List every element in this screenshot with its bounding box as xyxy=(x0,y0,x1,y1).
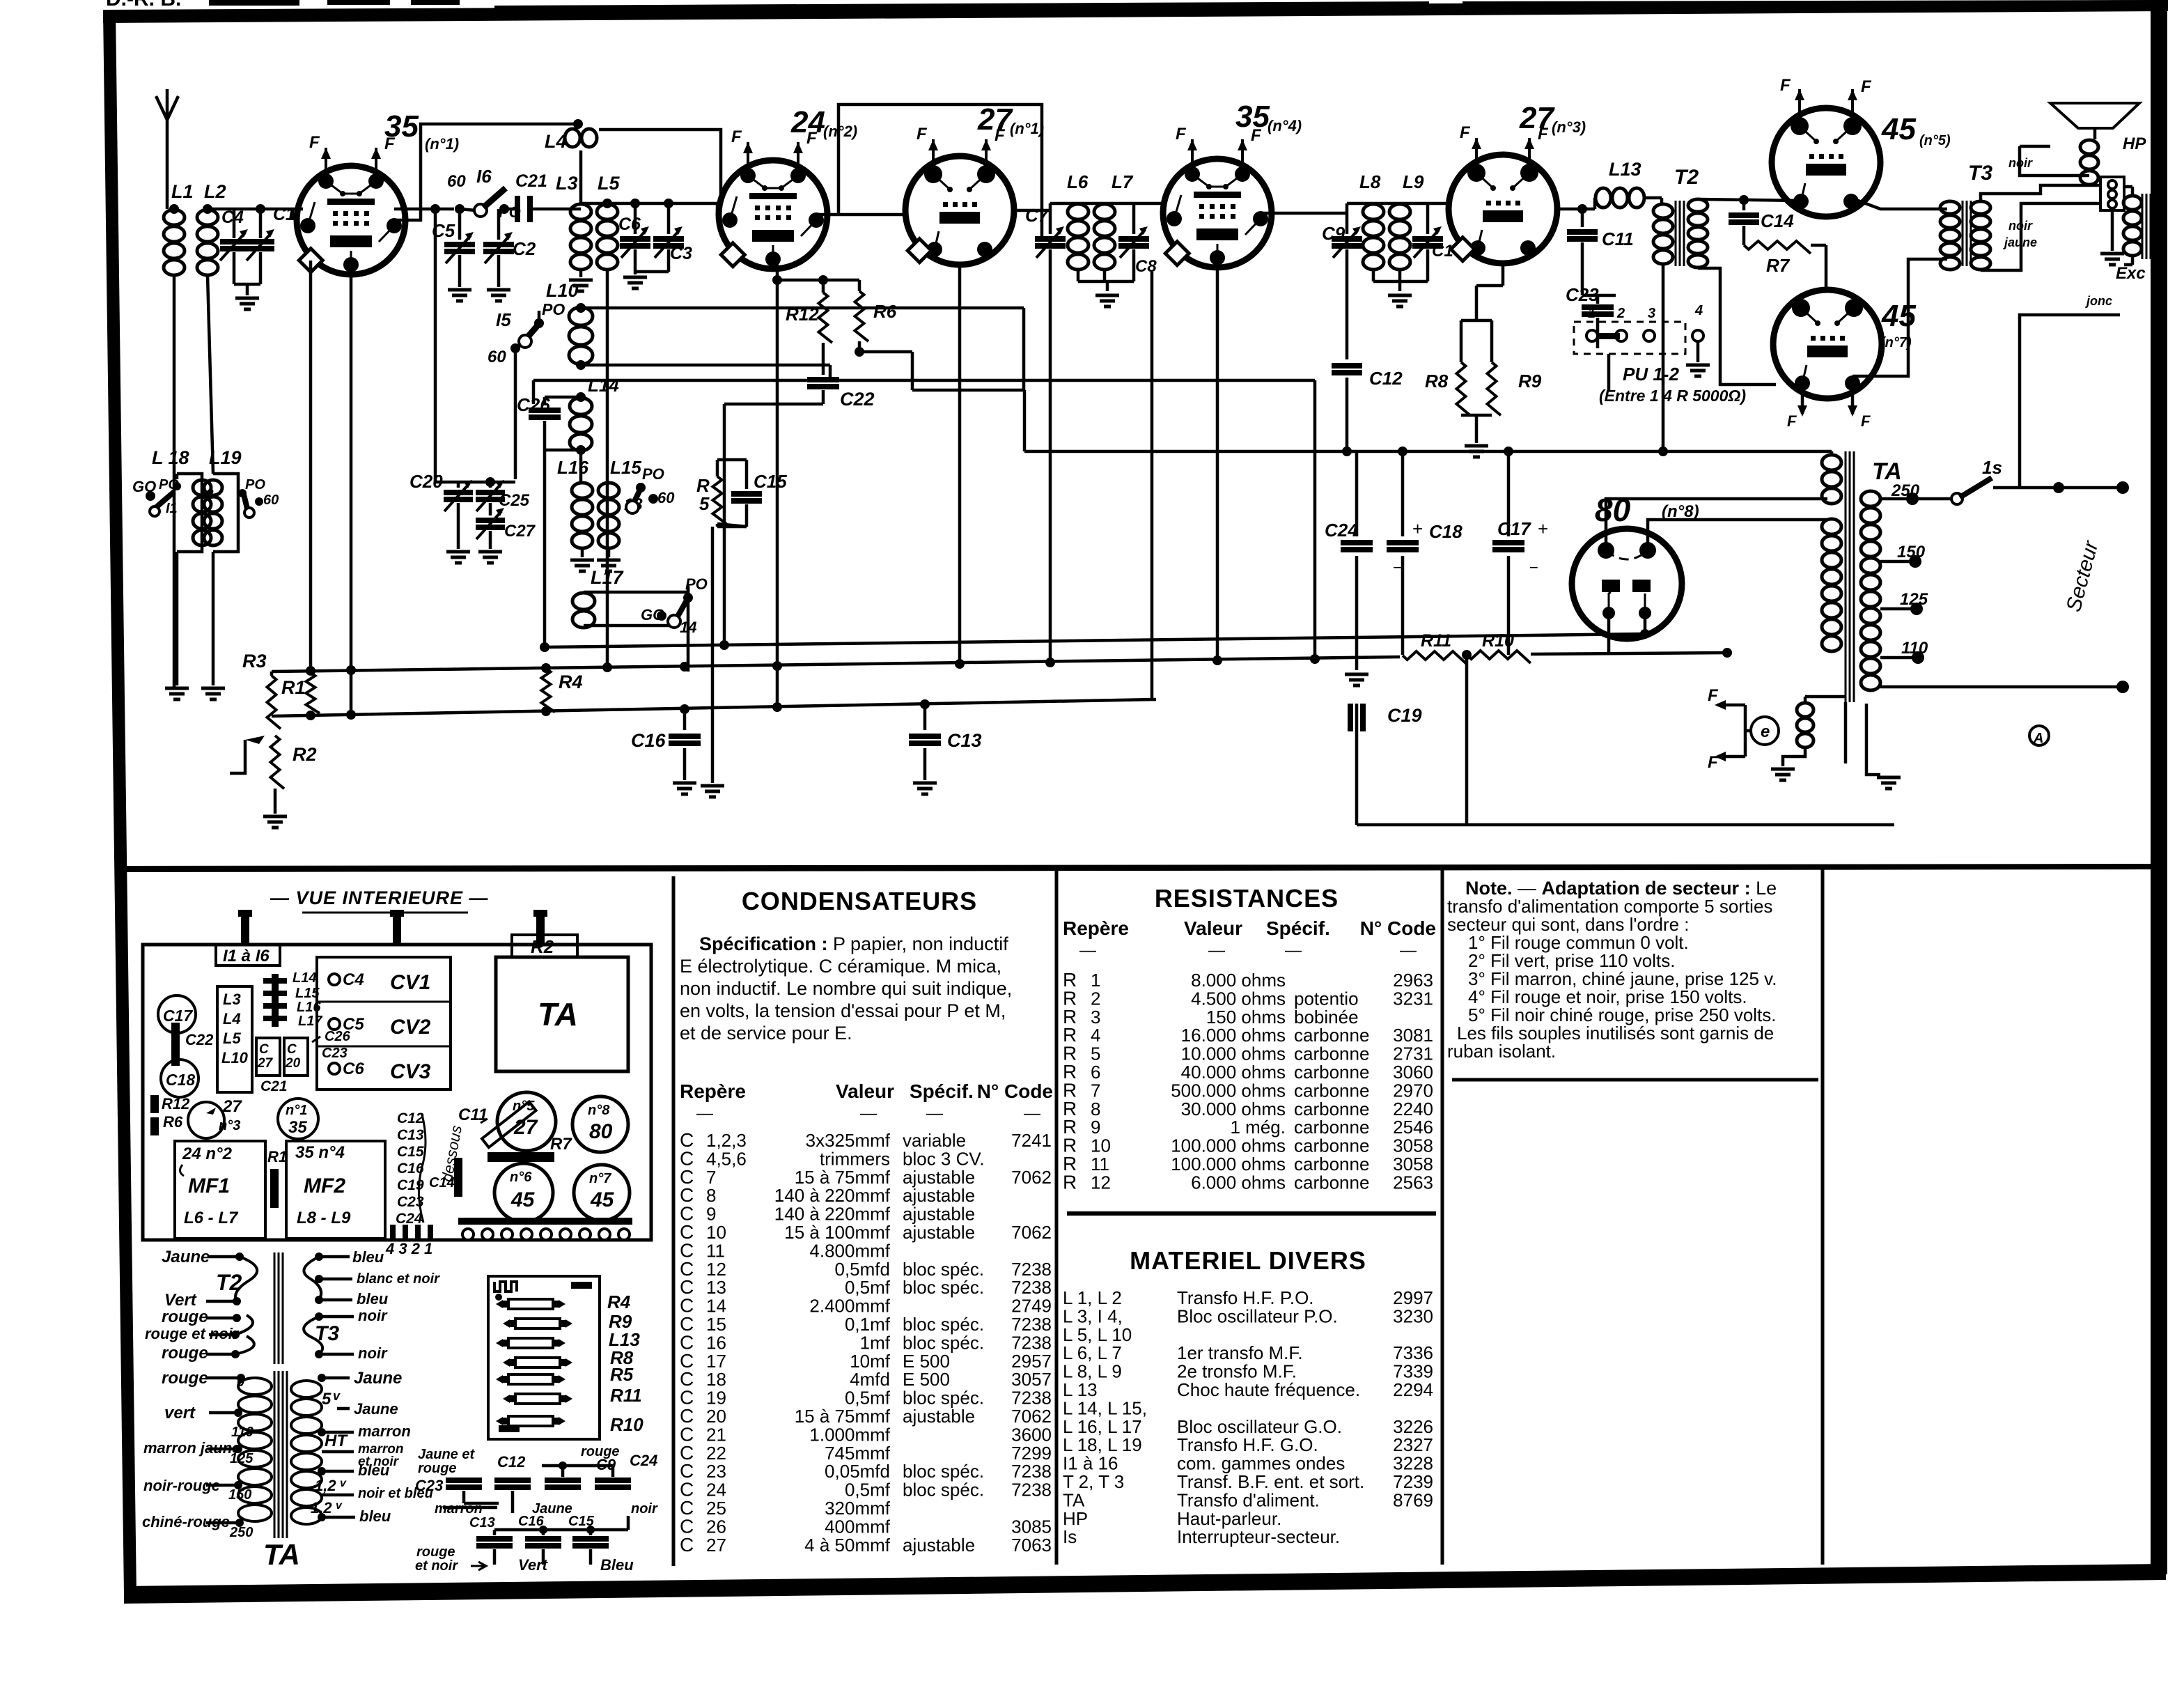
svg-text:—: — xyxy=(1024,1104,1040,1123)
svg-text:F: F xyxy=(1780,76,1791,95)
svg-text:non inductif. Le nombre qui su: non inductif. Le nombre qui suit indique… xyxy=(680,978,1012,999)
svg-text:R3: R3 xyxy=(242,651,267,672)
svg-text:n°6: n°6 xyxy=(510,1170,532,1185)
svg-text:3230: 3230 xyxy=(1393,1305,1433,1326)
svg-text:—: — xyxy=(1400,941,1417,960)
svg-text:Jaune: Jaune xyxy=(354,1369,402,1388)
svg-text:et de service pour E.: et de service pour E. xyxy=(680,1023,852,1044)
svg-text:27: 27 xyxy=(977,102,1013,137)
svg-text:CV3: CV3 xyxy=(390,1060,431,1083)
svg-text:L10: L10 xyxy=(221,1049,249,1067)
svg-text:Bloc oscillateur P.O.: Bloc oscillateur P.O. xyxy=(1177,1305,1338,1326)
svg-text:R4: R4 xyxy=(559,672,583,692)
svg-text:C24: C24 xyxy=(630,1452,657,1469)
svg-text:N° Code: N° Code xyxy=(1360,917,1436,939)
svg-text:60: 60 xyxy=(487,348,506,366)
svg-text:C: C xyxy=(680,1534,694,1556)
svg-text:C12: C12 xyxy=(397,1110,424,1126)
svg-text:Secteur: Secteur xyxy=(2062,538,2103,614)
svg-text:n°3: n°3 xyxy=(219,1118,240,1133)
svg-text:C26: C26 xyxy=(325,1029,351,1044)
svg-text:R6: R6 xyxy=(163,1113,183,1131)
svg-text:R4: R4 xyxy=(607,1292,631,1312)
svg-text:ajustable: ajustable xyxy=(903,1535,975,1556)
svg-text:F: F xyxy=(1861,77,1872,96)
svg-text:C15: C15 xyxy=(754,471,787,492)
svg-text:(n°4): (n°4) xyxy=(1267,117,1302,134)
svg-text:blanc et noir: blanc et noir xyxy=(357,1271,440,1287)
svg-text:v: v xyxy=(336,1500,343,1512)
svg-text:60: 60 xyxy=(447,172,466,191)
svg-text:CONDENSATEURS: CONDENSATEURS xyxy=(742,887,977,915)
svg-text:R11: R11 xyxy=(610,1385,642,1406)
svg-text:C16: C16 xyxy=(631,730,666,751)
svg-text:Exc: Exc xyxy=(2116,264,2146,283)
svg-text:20: 20 xyxy=(285,1056,301,1071)
svg-text:TA: TA xyxy=(538,996,578,1032)
svg-text:n°1: n°1 xyxy=(286,1103,307,1118)
svg-text:C4: C4 xyxy=(343,970,364,989)
svg-text:−: − xyxy=(1529,559,1538,576)
svg-text:12: 12 xyxy=(1091,1172,1111,1193)
svg-text:L7: L7 xyxy=(1111,171,1134,192)
svg-text:F: F xyxy=(1460,123,1471,142)
svg-text:C18: C18 xyxy=(1429,521,1462,542)
svg-text:C23: C23 xyxy=(322,1046,348,1061)
svg-text:v: v xyxy=(333,1389,341,1403)
svg-text:7062: 7062 xyxy=(1011,1222,1052,1243)
svg-text:vert: vert xyxy=(164,1404,196,1422)
svg-text:−: − xyxy=(1393,559,1402,576)
svg-text:2294: 2294 xyxy=(1393,1379,1433,1400)
svg-text:5: 5 xyxy=(322,1390,331,1409)
svg-text:v: v xyxy=(340,1478,347,1489)
svg-text:C18: C18 xyxy=(166,1071,195,1089)
svg-text:35 n°4: 35 n°4 xyxy=(295,1143,345,1162)
svg-text:Spécif.: Spécif. xyxy=(1266,917,1330,939)
svg-text:C22: C22 xyxy=(840,389,875,410)
svg-text:C21: C21 xyxy=(260,1078,288,1094)
svg-text:Interrupteur-secteur.: Interrupteur-secteur. xyxy=(1177,1526,1340,1547)
svg-text:7063: 7063 xyxy=(1011,1535,1052,1556)
svg-text:MATERIEL DIVERS: MATERIEL DIVERS xyxy=(1130,1246,1366,1275)
svg-text:Vert: Vert xyxy=(164,1291,197,1310)
svg-text:C27: C27 xyxy=(504,522,536,541)
svg-text:C17: C17 xyxy=(163,1007,193,1025)
svg-text:TA: TA xyxy=(263,1538,300,1571)
svg-text:R2: R2 xyxy=(292,744,317,765)
svg-text:F: F xyxy=(1861,412,1871,430)
svg-text:L17: L17 xyxy=(298,1014,322,1029)
svg-text:(Entre 1 4 R 5000Ω): (Entre 1 4 R 5000Ω) xyxy=(1599,387,1746,405)
svg-text:45: 45 xyxy=(590,1188,615,1211)
svg-text:C23: C23 xyxy=(415,1477,443,1494)
svg-text:—: — xyxy=(696,1104,713,1123)
svg-text:I1 à I6: I1 à I6 xyxy=(223,947,270,965)
svg-text:et noir: et noir xyxy=(415,1558,458,1574)
svg-text:R2: R2 xyxy=(531,936,554,957)
svg-text:Bleu: Bleu xyxy=(600,1556,634,1574)
svg-text:C: C xyxy=(259,1042,269,1057)
svg-text:C7: C7 xyxy=(1025,205,1050,226)
svg-text:L4: L4 xyxy=(545,131,567,152)
svg-text:1s: 1s xyxy=(1982,457,2002,478)
svg-text:MF1: MF1 xyxy=(188,1174,230,1197)
svg-text:3: 3 xyxy=(1648,306,1655,321)
svg-text:—: — xyxy=(860,1104,877,1123)
svg-text:HT: HT xyxy=(325,1432,348,1450)
svg-text:bloc spéc.: bloc spéc. xyxy=(903,1480,984,1500)
svg-text:R11: R11 xyxy=(1421,631,1451,651)
svg-text:(n°3): (n°3) xyxy=(1552,118,1586,136)
svg-text:C24: C24 xyxy=(1325,520,1358,541)
svg-text:I2: I2 xyxy=(202,487,214,502)
svg-text:L19: L19 xyxy=(209,447,242,468)
svg-text:8769: 8769 xyxy=(1393,1489,1433,1510)
svg-text:27: 27 xyxy=(257,1056,274,1071)
svg-text:7062: 7062 xyxy=(1011,1167,1052,1188)
svg-text:F: F xyxy=(1708,686,1719,705)
svg-text:rouge: rouge xyxy=(162,1344,208,1363)
svg-text:Jaune: Jaune xyxy=(162,1248,210,1266)
svg-text:rouge: rouge xyxy=(416,1544,455,1560)
svg-text:CV1: CV1 xyxy=(390,971,430,994)
svg-text:L16: L16 xyxy=(297,1000,321,1015)
svg-text:marron: marron xyxy=(358,1422,411,1440)
svg-text:Choc haute fréquence.: Choc haute fréquence. xyxy=(1177,1379,1360,1400)
svg-text:C22: C22 xyxy=(185,1031,214,1048)
svg-text:I6: I6 xyxy=(476,166,492,187)
svg-text:7241: 7241 xyxy=(1011,1130,1052,1151)
svg-text:C13: C13 xyxy=(947,730,982,751)
svg-text:24 n°2: 24 n°2 xyxy=(182,1145,233,1163)
svg-text:27: 27 xyxy=(706,1535,726,1556)
svg-text:A: A xyxy=(2033,731,2043,746)
svg-text:R6: R6 xyxy=(873,301,897,322)
svg-text:L9: L9 xyxy=(1403,171,1424,192)
svg-text:R7: R7 xyxy=(1766,255,1791,276)
svg-text:F: F xyxy=(731,127,742,146)
svg-text:ajustable: ajustable xyxy=(903,1406,975,1427)
svg-text:4 3 2 1: 4 3 2 1 xyxy=(385,1240,432,1257)
svg-text:F: F xyxy=(1787,412,1797,430)
svg-text:45: 45 xyxy=(1881,299,1916,333)
svg-text:2563: 2563 xyxy=(1393,1172,1433,1193)
svg-text:L10: L10 xyxy=(546,280,579,301)
svg-text:1: 1 xyxy=(1588,306,1596,321)
svg-text:C1: C1 xyxy=(273,205,295,224)
svg-text:L6 - L7: L6 - L7 xyxy=(184,1209,239,1227)
svg-text:1,2: 1,2 xyxy=(315,1477,336,1494)
svg-text:R12: R12 xyxy=(162,1095,190,1112)
svg-text:4: 4 xyxy=(1694,303,1703,318)
svg-text:+: + xyxy=(1412,518,1423,539)
svg-text:PU 1-2: PU 1-2 xyxy=(1623,364,1679,385)
svg-text:Is: Is xyxy=(1063,1526,1077,1547)
svg-text:— VUE INTERIEURE —: — VUE INTERIEURE — xyxy=(270,887,489,908)
svg-text:R7: R7 xyxy=(550,1135,572,1154)
svg-text:C21: C21 xyxy=(515,171,547,191)
svg-text:rouge: rouge xyxy=(162,1308,208,1326)
svg-text:Valeur: Valeur xyxy=(836,1080,894,1102)
svg-text:C6: C6 xyxy=(343,1060,364,1078)
svg-text:C17: C17 xyxy=(1497,518,1531,539)
svg-text:HP: HP xyxy=(2123,134,2146,153)
svg-text:I5: I5 xyxy=(496,309,511,330)
svg-text:C: C xyxy=(287,1042,297,1057)
svg-text:2: 2 xyxy=(1616,306,1625,321)
svg-text:Spécification : P papier, non: Spécification : P papier, non inductif xyxy=(699,933,1008,954)
svg-text:(n°2): (n°2) xyxy=(823,123,857,140)
svg-text:PO: PO xyxy=(642,465,664,483)
svg-text:e: e xyxy=(1761,722,1770,741)
svg-text:C2: C2 xyxy=(513,238,536,259)
svg-text:27: 27 xyxy=(1519,101,1555,135)
svg-text:3231: 3231 xyxy=(1393,988,1433,1009)
svg-text:(n°1): (n°1) xyxy=(1010,120,1044,137)
svg-text:L16: L16 xyxy=(557,457,588,478)
svg-text:ajustable: ajustable xyxy=(903,1222,975,1243)
svg-text:F: F xyxy=(916,125,928,144)
svg-text:E électrolytique. C céramique.: E électrolytique. C céramique. M mica, xyxy=(680,956,1001,977)
svg-text:jonc: jonc xyxy=(2085,294,2112,308)
svg-text:I1: I1 xyxy=(166,501,178,516)
svg-text:Valeur: Valeur xyxy=(1184,917,1242,939)
svg-text:27: 27 xyxy=(222,1097,242,1116)
svg-text:7238: 7238 xyxy=(1011,1480,1052,1500)
svg-text:MF2: MF2 xyxy=(304,1174,345,1197)
svg-text:—: — xyxy=(1208,941,1225,960)
svg-text:R10: R10 xyxy=(1482,631,1514,651)
svg-text:C14: C14 xyxy=(429,1175,455,1190)
svg-text:R: R xyxy=(1063,1171,1077,1193)
svg-text:F: F xyxy=(309,133,320,152)
svg-text:C6: C6 xyxy=(618,215,641,234)
svg-text:C13: C13 xyxy=(469,1515,495,1530)
svg-text:C24: C24 xyxy=(396,1211,423,1227)
svg-text:4 à 50mmf: 4 à 50mmf xyxy=(804,1535,891,1556)
svg-text:T2: T2 xyxy=(1674,166,1699,189)
svg-text:L14: L14 xyxy=(292,970,316,986)
svg-text:L3: L3 xyxy=(556,173,578,194)
svg-text:—: — xyxy=(926,1104,943,1123)
svg-text:CV2: CV2 xyxy=(390,1016,431,1039)
svg-text:+: + xyxy=(1538,518,1548,539)
svg-text:6.000 ohms: 6.000 ohms xyxy=(1191,1172,1286,1193)
svg-text:L15: L15 xyxy=(610,457,641,478)
svg-text:250: 250 xyxy=(229,1525,253,1540)
svg-text:bleu: bleu xyxy=(358,1461,390,1479)
svg-text:RESISTANCES: RESISTANCES xyxy=(1155,884,1339,913)
svg-text:bleu: bleu xyxy=(359,1507,391,1525)
svg-text:C15: C15 xyxy=(397,1144,424,1160)
svg-text:L17: L17 xyxy=(591,567,625,588)
svg-text:Jaune et: Jaune et xyxy=(418,1447,475,1462)
svg-text:60: 60 xyxy=(657,489,675,506)
svg-text:C19: C19 xyxy=(1387,705,1422,726)
svg-text:L8: L8 xyxy=(1359,171,1381,192)
svg-text:Jaune: Jaune xyxy=(354,1400,398,1418)
svg-text:35: 35 xyxy=(288,1118,307,1137)
svg-text:—: — xyxy=(1285,941,1302,960)
svg-text:R9: R9 xyxy=(1518,371,1542,391)
svg-text:noir: noir xyxy=(358,1344,388,1362)
svg-text:45: 45 xyxy=(1881,112,1916,146)
svg-text:C8: C8 xyxy=(1135,257,1157,276)
svg-text:D.-R. B.: D.-R. B. xyxy=(106,0,181,10)
svg-text:5: 5 xyxy=(699,493,710,514)
svg-text:n°7: n°7 xyxy=(589,1171,611,1186)
svg-text:L 18: L 18 xyxy=(152,447,189,468)
svg-text:noir: noir xyxy=(631,1501,658,1517)
svg-text:C12: C12 xyxy=(1369,368,1403,389)
svg-text:N° Code: N° Code xyxy=(977,1080,1053,1102)
svg-text:L1: L1 xyxy=(171,181,194,202)
svg-text:L2: L2 xyxy=(204,181,226,202)
svg-text:R1: R1 xyxy=(267,1148,287,1165)
svg-text:L4: L4 xyxy=(223,1010,241,1027)
svg-text:35: 35 xyxy=(1235,100,1270,134)
svg-text:PO: PO xyxy=(542,300,565,318)
svg-text:60: 60 xyxy=(263,493,279,508)
svg-text:R1: R1 xyxy=(281,677,306,698)
svg-text:L14: L14 xyxy=(588,375,619,396)
svg-text:L5: L5 xyxy=(223,1030,241,1047)
svg-text:noir: noir xyxy=(358,1307,388,1324)
svg-text:bloc spéc.: bloc spéc. xyxy=(903,1277,984,1298)
svg-text:Repère: Repère xyxy=(1063,917,1129,939)
svg-text:(n°1): (n°1) xyxy=(425,135,459,153)
svg-text:27: 27 xyxy=(513,1116,538,1139)
svg-text:Spécif.: Spécif. xyxy=(910,1080,974,1102)
svg-text:PO: PO xyxy=(245,477,265,493)
svg-text:carbonne: carbonne xyxy=(1294,1172,1369,1193)
svg-text:—: — xyxy=(1079,941,1096,960)
svg-text:(n°5): (n°5) xyxy=(1919,133,1951,148)
svg-text:bleu: bleu xyxy=(357,1290,389,1308)
svg-text:R5: R5 xyxy=(610,1364,634,1385)
svg-text:C11: C11 xyxy=(1602,228,1634,249)
svg-text:L13: L13 xyxy=(1609,159,1641,180)
svg-text:C12: C12 xyxy=(497,1453,526,1471)
svg-text:rouge: rouge xyxy=(162,1369,208,1388)
svg-text:24: 24 xyxy=(790,105,825,139)
svg-text:rouge: rouge xyxy=(418,1461,457,1476)
svg-text:n°8: n°8 xyxy=(588,1103,610,1118)
svg-text:R8: R8 xyxy=(1425,371,1449,391)
svg-text:80: 80 xyxy=(589,1120,613,1143)
svg-text:L5: L5 xyxy=(598,173,620,194)
svg-text:Repère: Repère xyxy=(680,1080,746,1102)
svg-text:35: 35 xyxy=(384,109,419,144)
svg-text:n°5: n°5 xyxy=(513,1099,535,1114)
svg-text:GO: GO xyxy=(641,606,664,623)
svg-text:Vert: Vert xyxy=(518,1556,549,1574)
svg-text:ruban isolant.: ruban isolant. xyxy=(1447,1041,1556,1062)
svg-text:L15: L15 xyxy=(295,986,320,1001)
svg-text:C13: C13 xyxy=(397,1127,424,1143)
svg-text:L3: L3 xyxy=(223,991,241,1008)
svg-text:45: 45 xyxy=(510,1188,536,1211)
svg-text:L6: L6 xyxy=(1067,171,1089,192)
svg-text:R10: R10 xyxy=(610,1414,643,1435)
svg-text:T3: T3 xyxy=(1968,162,1992,185)
svg-text:F: F xyxy=(1176,125,1187,144)
svg-text:en volts, la tension d'essai p: en volts, la tension d'essai pour P et M… xyxy=(680,1000,1006,1021)
svg-text:L8 - L9: L8 - L9 xyxy=(297,1209,351,1227)
svg-text:C14: C14 xyxy=(1761,210,1794,231)
svg-text:bleu: bleu xyxy=(352,1248,384,1266)
